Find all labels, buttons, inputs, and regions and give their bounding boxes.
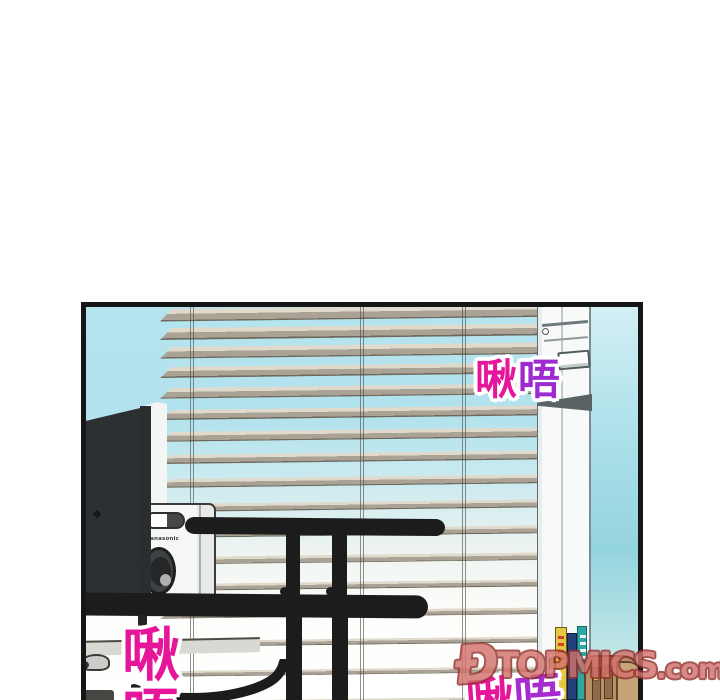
book-spine-text (580, 635, 586, 661)
handbag-flap (616, 661, 638, 700)
floor-object (86, 690, 114, 700)
book-spine-text (558, 636, 564, 662)
sfx-char: 啾 (464, 671, 516, 700)
blind-slat (160, 427, 537, 441)
handbag-buckle (605, 673, 611, 679)
blind-slat (160, 451, 537, 465)
blind-cord (462, 307, 466, 700)
bookcase-knob (542, 328, 549, 335)
handbag (584, 655, 638, 700)
blind-slat (160, 475, 537, 488)
sfx-char: 唔 (120, 686, 182, 700)
blind-cord (360, 307, 364, 700)
comic-page: Panasonic 啾唔 (0, 0, 720, 700)
sfx-char: 啾 (120, 625, 182, 686)
bookcase-shelf-edge (544, 336, 588, 342)
desk-leg (332, 533, 347, 597)
speaker-display-window (145, 512, 185, 529)
panel-interior: Panasonic 啾唔 (86, 307, 638, 700)
blind-slat (160, 579, 537, 591)
monitor-screen (86, 408, 140, 605)
sfx-text-bottom-left: 啾 唔 (120, 625, 182, 700)
desk-leg-lower (332, 616, 348, 700)
handbag-strap (604, 665, 613, 699)
blind-slat (160, 552, 537, 564)
blind-slat (160, 307, 537, 321)
book-navy (567, 633, 577, 700)
speaker-cone-cap (160, 574, 171, 586)
sfx-char: 唔 (512, 668, 564, 700)
monitor-logo (124, 561, 139, 565)
handbag-buckle (593, 675, 599, 681)
blind-slat (160, 405, 537, 420)
sfx-char: 啾 (475, 355, 518, 404)
sfx-text-bottom-center: 啾唔 (464, 672, 563, 700)
desk-tabletop (185, 517, 445, 536)
comic-panel: Panasonic 啾唔 (81, 302, 643, 700)
blind-slat (160, 323, 537, 340)
blind-slat (160, 500, 537, 513)
sfx-text-top-right: 啾唔 (475, 359, 561, 401)
desk-leg (286, 533, 300, 597)
computer-mouse (86, 654, 110, 671)
handbag-strap (592, 667, 601, 700)
right-wall-gradient (591, 307, 638, 700)
watermark-suffix: .com (656, 656, 720, 683)
bookcase-shelf-edge (542, 320, 588, 326)
monitor-side-bezel (140, 406, 151, 607)
drawer-handle (557, 350, 590, 371)
sfx-char: 唔 (518, 355, 561, 404)
